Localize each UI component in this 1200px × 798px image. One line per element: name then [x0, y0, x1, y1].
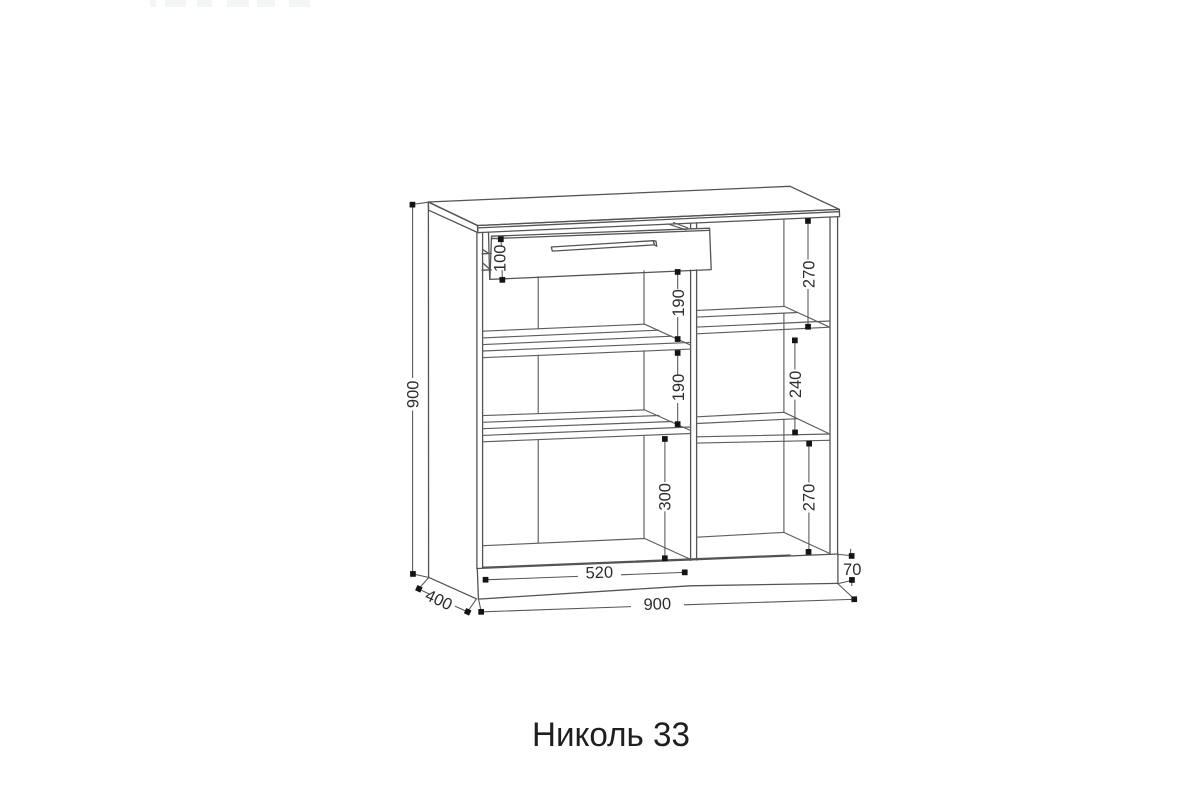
svg-text:400: 400	[422, 586, 455, 614]
svg-text:900: 900	[643, 595, 671, 614]
svg-text:270: 270	[801, 261, 819, 289]
svg-text:190: 190	[670, 374, 688, 402]
svg-text:900: 900	[404, 381, 422, 409]
svg-text:Николь 33: Николь 33	[532, 716, 690, 754]
svg-text:520: 520	[585, 564, 613, 583]
svg-text:240: 240	[787, 371, 805, 399]
svg-text:270: 270	[801, 484, 819, 512]
svg-text:190: 190	[670, 289, 688, 317]
svg-text:300: 300	[657, 483, 675, 511]
svg-text:100: 100	[492, 245, 510, 273]
svg-text:70: 70	[843, 561, 861, 579]
